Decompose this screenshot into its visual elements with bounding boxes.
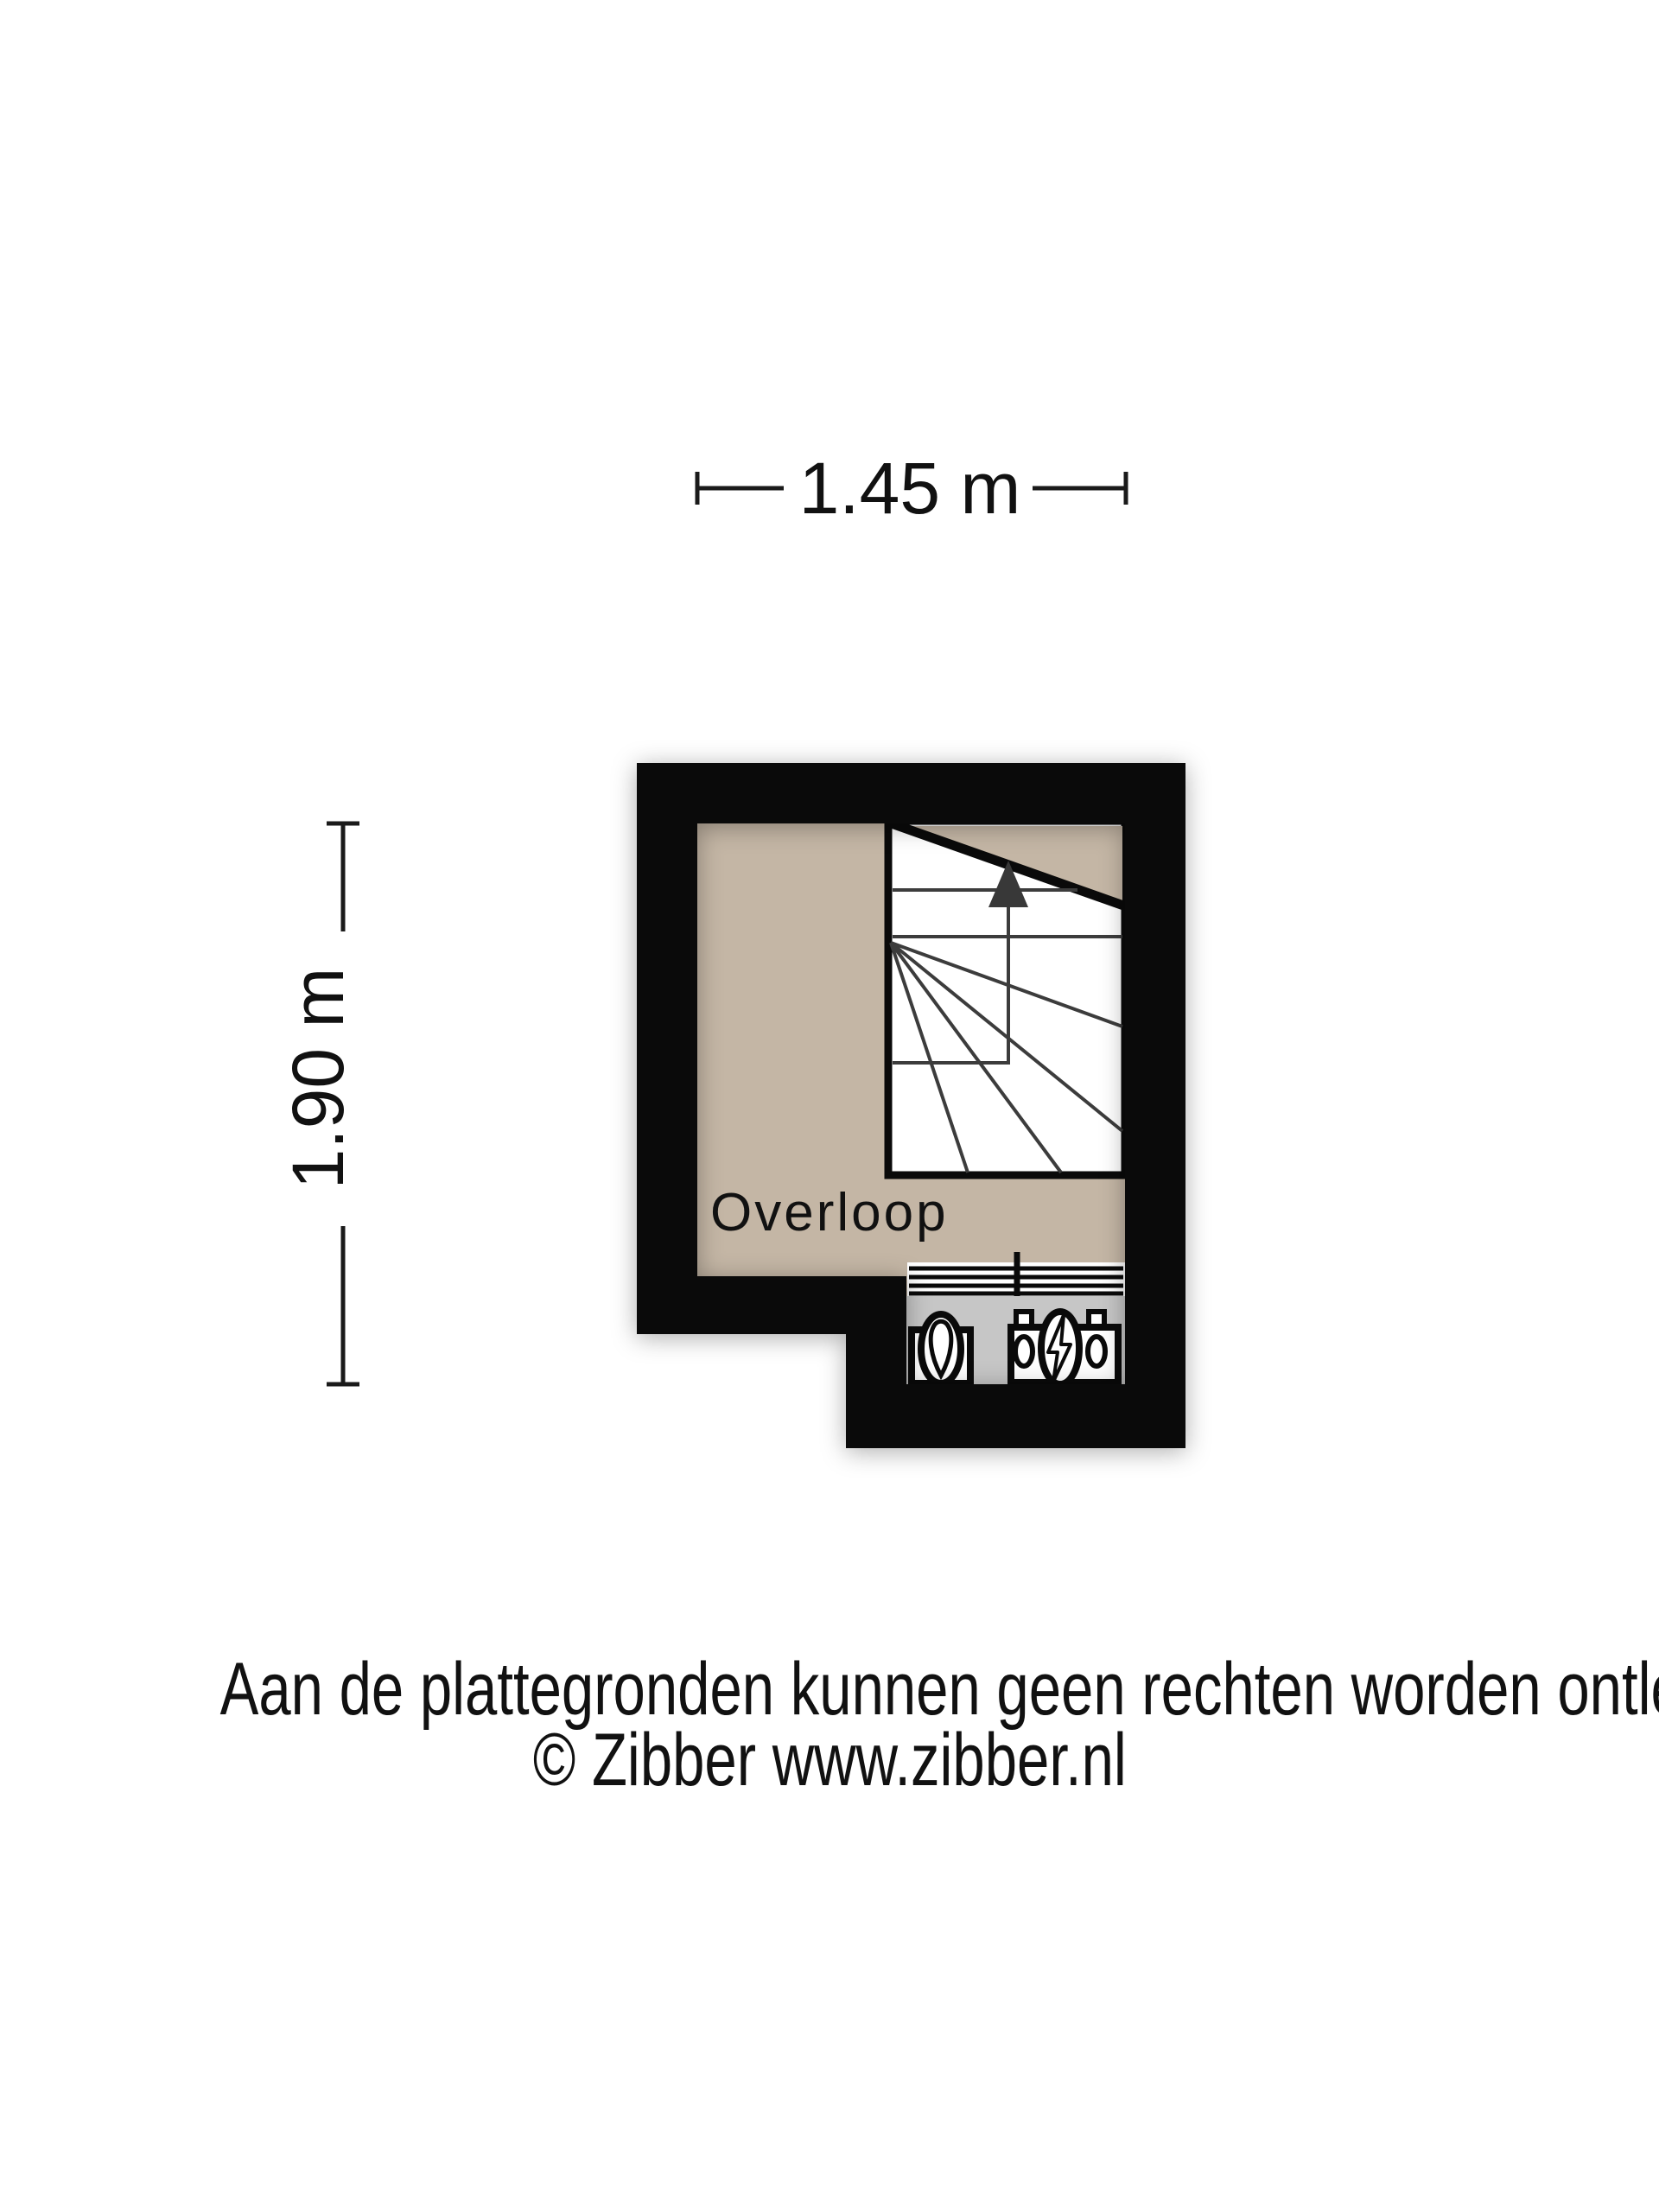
- dimension-width-label: 1.45 m: [799, 448, 1021, 529]
- staircase: [887, 821, 1126, 1175]
- floorplan-page: 1.45 m 1.90 m: [0, 0, 1659, 2212]
- disclaimer-text-content: Aan de plattegronden kunnen geen rechten…: [220, 1652, 1659, 1726]
- dimension-height-label: 1.90 m: [277, 968, 359, 1190]
- disclaimer-text: Aan de plattegronden kunnen geen rechten…: [0, 1652, 1659, 1726]
- electricity-meter-icon: [1011, 1312, 1118, 1384]
- copyright-text: © Zibber www.zibber.nl: [0, 1723, 1659, 1797]
- room-label: Overloop: [710, 1183, 949, 1243]
- floorplan-drawing: 1.45 m 1.90 m: [0, 0, 1659, 2212]
- dimension-width: 1.45 m: [697, 448, 1126, 529]
- copyright-text-content: © Zibber www.zibber.nl: [533, 1723, 1127, 1797]
- dimension-height: 1.90 m: [277, 823, 359, 1384]
